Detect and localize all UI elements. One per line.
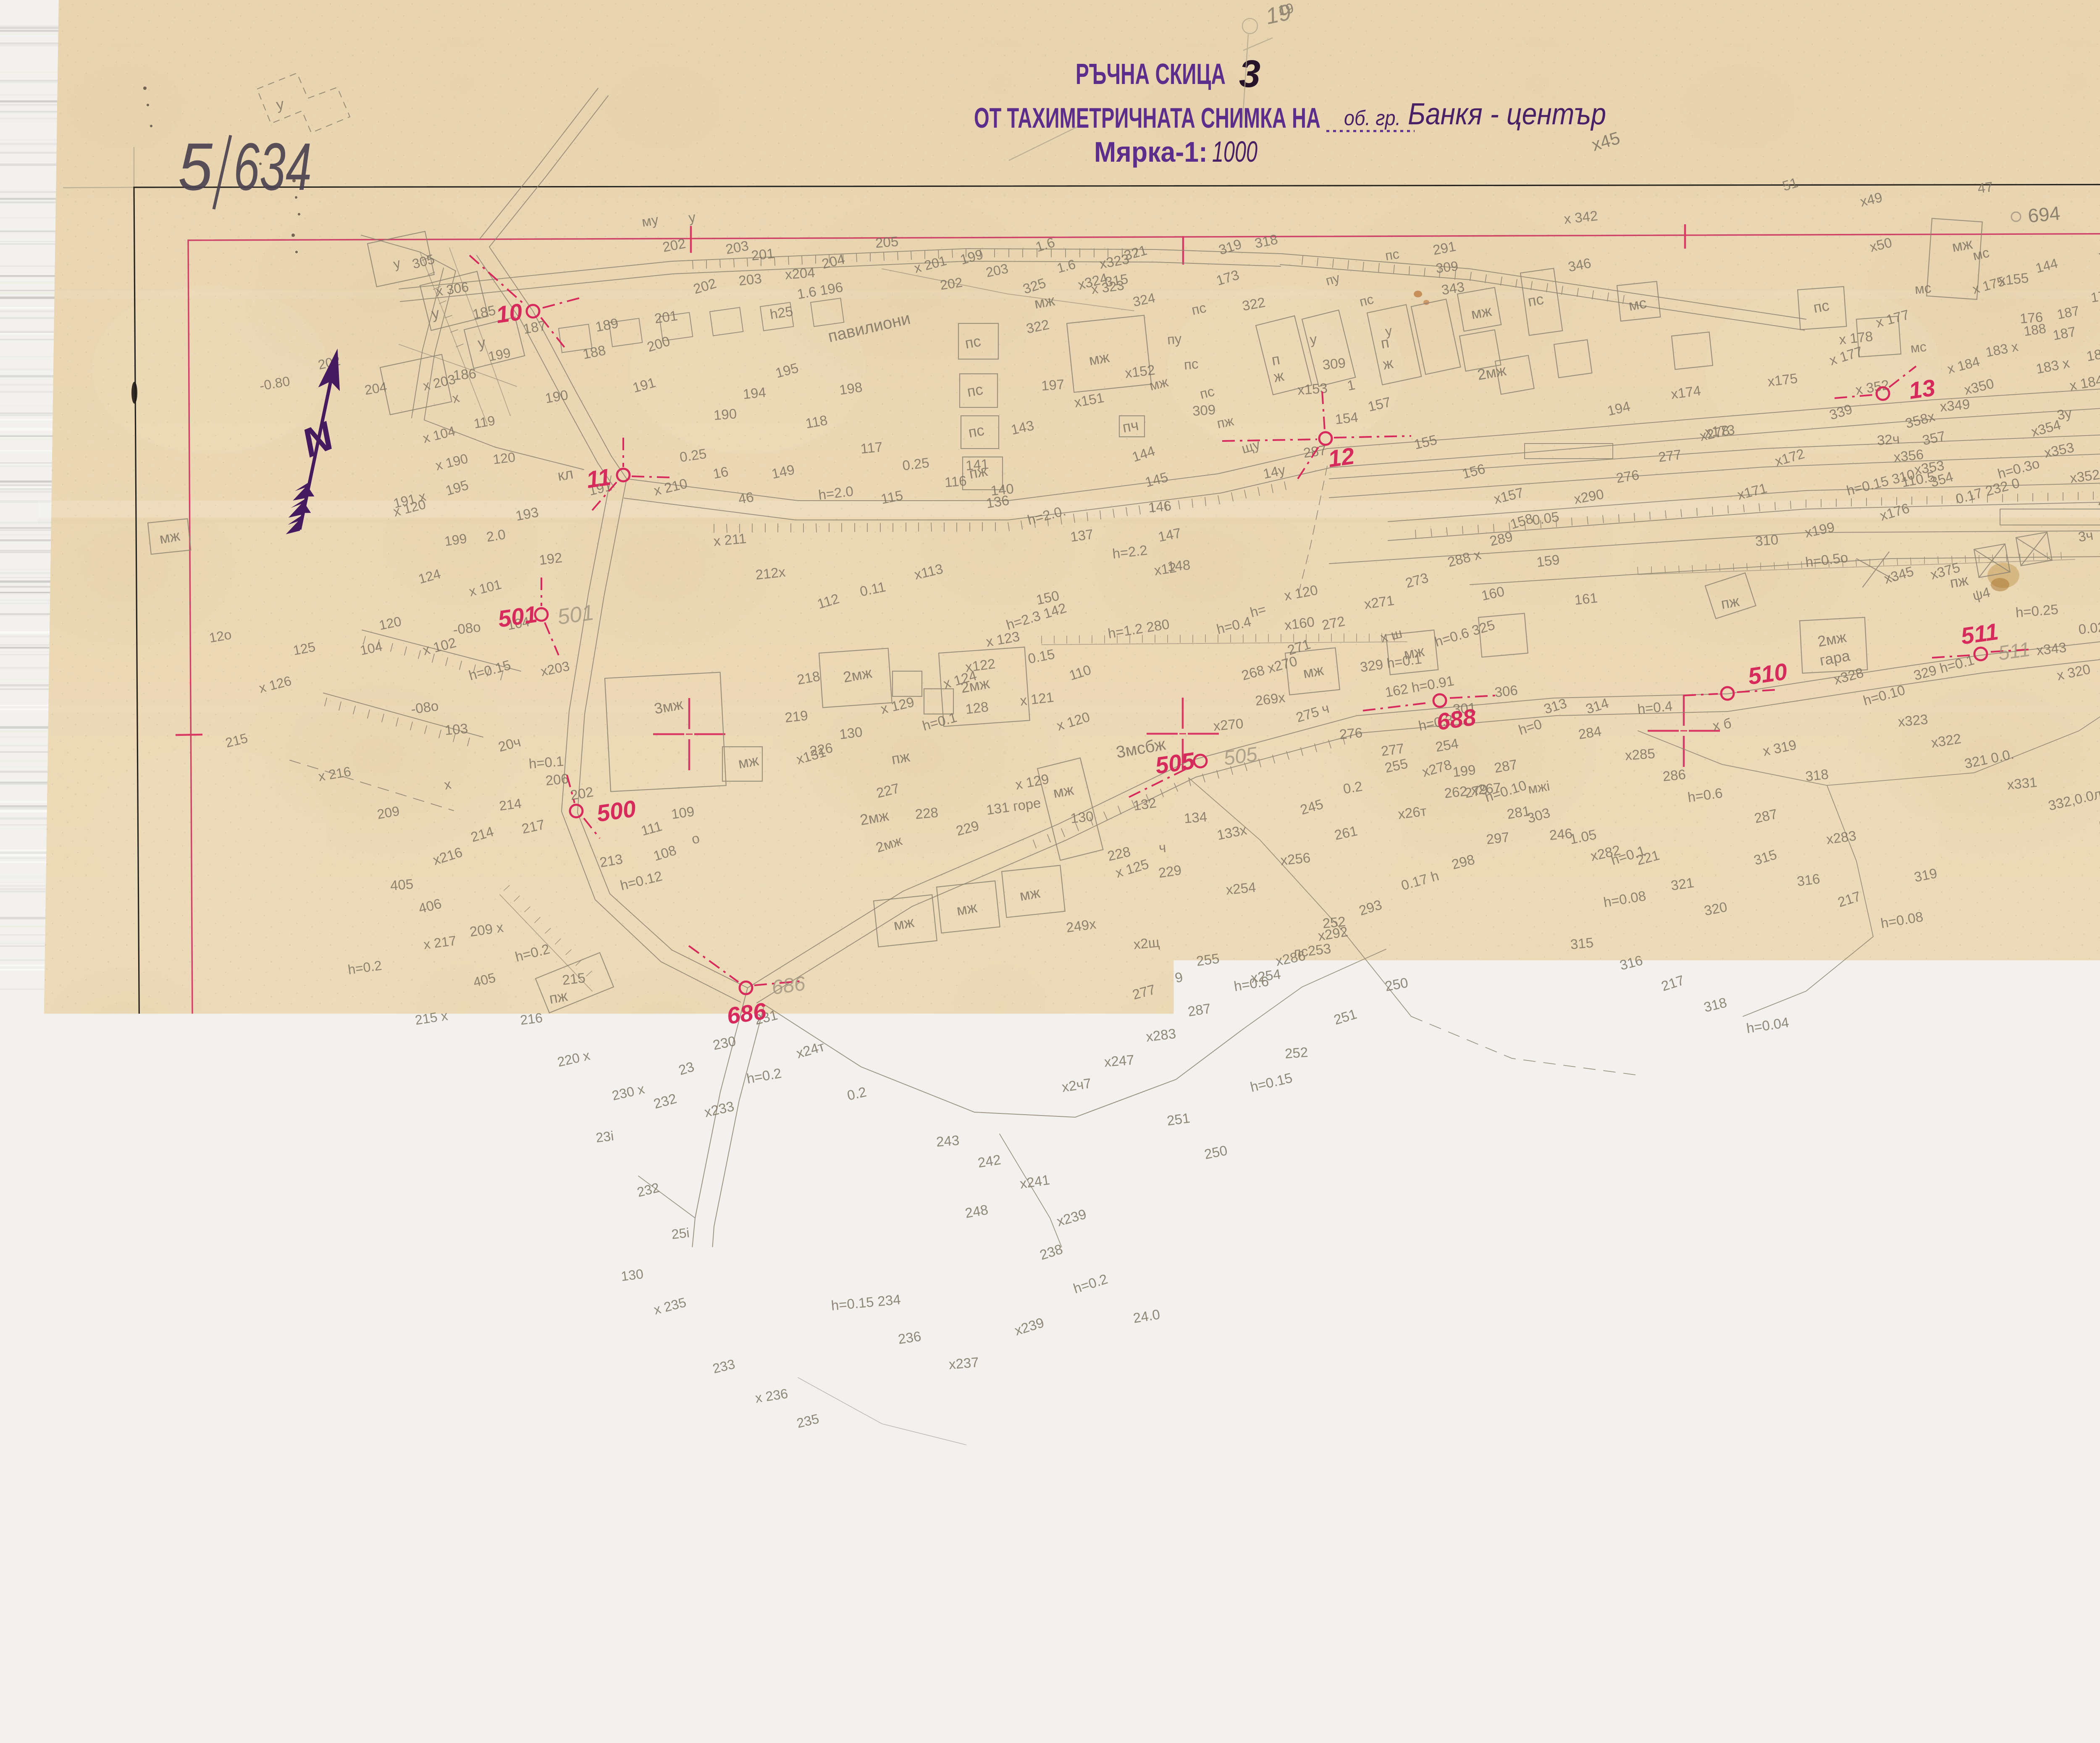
svg-text:286: 286 xyxy=(1662,766,1686,784)
svg-text:1000: 1000 xyxy=(1212,135,1257,168)
svg-text:мс: мс xyxy=(1910,339,1927,356)
svg-text:205: 205 xyxy=(875,234,899,251)
svg-text:130: 130 xyxy=(838,724,863,742)
svg-text:х323: х323 xyxy=(1897,711,1929,729)
svg-text:12: 12 xyxy=(1326,442,1356,472)
svg-text:310: 310 xyxy=(1755,532,1779,549)
svg-text:5: 5 xyxy=(178,129,213,204)
svg-text:h=0.1: h=0.1 xyxy=(528,753,564,772)
svg-text:0.2: 0.2 xyxy=(1342,778,1363,797)
svg-text:ОПЕРАТОР: ИНЖ. Г. ГРЪНЧОВСКИ: ОПЕРАТОР: ИНЖ. Г. ГРЪНЧОВСКИ xyxy=(1850,1608,2100,1643)
svg-text:х153: х153 xyxy=(1297,380,1328,398)
svg-text:501: 501 xyxy=(556,600,596,630)
svg-text:46: 46 xyxy=(737,489,755,507)
svg-text:128: 128 xyxy=(964,699,989,717)
svg-text:510: 510 xyxy=(1746,658,1789,689)
svg-text:501: 501 xyxy=(496,601,539,632)
svg-text:505: 505 xyxy=(1222,743,1259,770)
svg-text:пж: пж xyxy=(890,748,911,768)
svg-text:500: 500 xyxy=(595,795,638,827)
svg-text:3: 3 xyxy=(1239,52,1260,95)
svg-text:309: 309 xyxy=(1192,402,1216,419)
svg-text:219: 219 xyxy=(784,707,809,725)
svg-text:23і: 23і xyxy=(595,1128,615,1145)
svg-text:214: 214 xyxy=(498,795,522,814)
svg-text:об. гр.: об. гр. xyxy=(1344,106,1401,130)
svg-text:116: 116 xyxy=(944,473,968,490)
svg-text:246: 246 xyxy=(889,1111,913,1129)
svg-text:511: 511 xyxy=(1959,618,2000,649)
svg-text:688: 688 xyxy=(1435,703,1478,735)
svg-text:190: 190 xyxy=(713,406,738,423)
svg-text:686: 686 xyxy=(725,997,768,1029)
svg-text:277: 277 xyxy=(1380,740,1405,759)
svg-text:201: 201 xyxy=(654,307,679,326)
svg-text:19: 19 xyxy=(1263,0,1293,29)
svg-text:мж: мж xyxy=(892,913,915,934)
svg-text:309: 309 xyxy=(1322,355,1346,373)
svg-text:пс: пс xyxy=(963,332,982,352)
svg-text:пс: пс xyxy=(966,381,984,400)
svg-text:197: 197 xyxy=(1041,376,1065,394)
svg-text:246: 246 xyxy=(1549,825,1573,843)
svg-text:109: 109 xyxy=(670,803,696,822)
svg-text:228: 228 xyxy=(914,804,939,822)
svg-text:пж: пж xyxy=(1719,592,1740,612)
svg-text:694: 694 xyxy=(2027,202,2061,227)
svg-text:х247: х247 xyxy=(1104,1052,1135,1070)
svg-text:2.0: 2.0 xyxy=(485,526,507,545)
svg-text:мж: мж xyxy=(1950,235,1974,255)
svg-text:16: 16 xyxy=(711,463,730,481)
svg-text:202: 202 xyxy=(939,275,963,293)
svg-text:11: 11 xyxy=(585,463,612,493)
svg-text:634: 634 xyxy=(234,129,312,204)
svg-text:216: 216 xyxy=(519,1010,543,1028)
svg-text:мж: мж xyxy=(1470,302,1493,323)
svg-text:117: 117 xyxy=(860,439,883,457)
svg-text:686: 686 xyxy=(770,972,807,999)
svg-text:х 211: х 211 xyxy=(713,530,747,549)
svg-text:мж: мж xyxy=(1018,884,1041,904)
svg-text:120: 120 xyxy=(492,449,516,467)
svg-text:мж: мж xyxy=(1033,291,1056,312)
svg-text:Банкя - център: Банкя - център xyxy=(1408,97,1606,131)
svg-text:пс: пс xyxy=(1812,297,1830,316)
svg-text:141: 141 xyxy=(965,456,990,473)
svg-text:х б: х б xyxy=(1711,715,1732,734)
svg-text:х237: х237 xyxy=(948,1354,979,1372)
svg-text:212х: 212х xyxy=(755,564,787,583)
svg-text:х285: х285 xyxy=(1625,745,1656,763)
svg-text:пж: пж xyxy=(1215,413,1235,431)
svg-text:х204: х204 xyxy=(785,265,816,282)
svg-text:х2щ: х2щ xyxy=(1133,934,1160,952)
svg-text:х331: х331 xyxy=(2006,774,2038,793)
svg-text:ч: ч xyxy=(1158,840,1167,856)
svg-text:-08о: -08о xyxy=(452,619,482,638)
svg-text:х343: х343 xyxy=(2036,639,2067,658)
svg-text:192: 192 xyxy=(538,550,563,568)
svg-text:пс: пс xyxy=(1526,290,1545,310)
svg-text:198: 198 xyxy=(838,379,864,398)
svg-text:137: 137 xyxy=(1069,526,1095,545)
svg-text:252: 252 xyxy=(1284,1044,1309,1061)
svg-text:315: 315 xyxy=(1570,934,1594,952)
svg-text:3у: 3у xyxy=(2056,405,2073,423)
svg-text:159: 159 xyxy=(1536,551,1560,570)
svg-text:РЪЧНА СКИЦА: РЪЧНА СКИЦА xyxy=(1076,58,1226,90)
svg-text:309: 309 xyxy=(1435,258,1459,276)
svg-text:х349: х349 xyxy=(1939,396,1971,415)
svg-text:13: 13 xyxy=(1907,374,1937,404)
svg-text:146: 146 xyxy=(1147,498,1172,515)
svg-text:32ч: 32ч xyxy=(1877,431,1900,448)
svg-text:мс: мс xyxy=(1914,280,1932,297)
svg-text:3ч: 3ч xyxy=(2077,527,2094,545)
svg-text:пу: пу xyxy=(1167,331,1183,347)
svg-text:10: 10 xyxy=(494,298,524,328)
svg-text:пж: пж xyxy=(548,987,569,1007)
svg-text:186: 186 xyxy=(452,365,477,383)
svg-text:пс: пс xyxy=(967,421,985,441)
svg-text:ОТ ТАХИМЕТРИЧНАТА СНИМКА НА: ОТ ТАХИМЕТРИЧНАТА СНИМКА НА xyxy=(974,102,1320,134)
svg-text:0.25: 0.25 xyxy=(901,455,930,473)
svg-text:130: 130 xyxy=(1070,808,1095,826)
svg-text:132: 132 xyxy=(1132,795,1158,814)
svg-text:пс: пс xyxy=(1183,356,1199,373)
svg-text:мж: мж xyxy=(1087,348,1110,369)
svg-text:Мярка-1:: Мярка-1: xyxy=(1094,136,1207,168)
svg-text:47: 47 xyxy=(1977,179,1994,196)
svg-text:277: 277 xyxy=(1657,446,1682,465)
svg-text:215: 215 xyxy=(562,970,586,988)
svg-text:318: 318 xyxy=(1805,766,1830,784)
svg-text:199: 199 xyxy=(444,531,468,549)
svg-text:297: 297 xyxy=(1486,829,1510,847)
svg-text:316: 316 xyxy=(1796,871,1821,889)
svg-text:кл: кл xyxy=(556,465,575,484)
svg-text:199: 199 xyxy=(1452,762,1476,780)
svg-text:КРОКИСТ: ИНЖ. Н. ЦАНЕВ: КРОКИСТ: ИНЖ. Н. ЦАНЕВ xyxy=(1858,1572,2100,1606)
svg-text:мж: мж xyxy=(1302,661,1325,682)
svg-text:пс: пс xyxy=(1384,246,1400,263)
svg-text:мж: мж xyxy=(737,751,760,772)
svg-text:154: 154 xyxy=(1334,409,1359,427)
svg-text:511: 511 xyxy=(1997,638,2032,665)
svg-text:276: 276 xyxy=(1339,724,1363,742)
svg-text:пч: пч xyxy=(1121,416,1140,436)
svg-text:х270: х270 xyxy=(1213,716,1244,734)
svg-text:мж: мж xyxy=(1052,781,1075,801)
svg-text:му: му xyxy=(640,212,659,230)
svg-text:0.02: 0.02 xyxy=(2078,619,2100,637)
svg-text:мс: мс xyxy=(1627,294,1648,314)
svg-text:мж: мж xyxy=(955,898,978,919)
svg-text:161: 161 xyxy=(1574,590,1599,608)
svg-text:243: 243 xyxy=(936,1132,960,1150)
svg-text:236: 236 xyxy=(897,1328,922,1347)
svg-text:мж: мж xyxy=(158,527,181,547)
svg-text:203: 203 xyxy=(738,270,763,289)
svg-text:х256: х256 xyxy=(1280,850,1311,868)
svg-text:251: 251 xyxy=(1166,1110,1191,1129)
svg-text:130: 130 xyxy=(620,1266,644,1284)
svg-text:201: 201 xyxy=(751,245,775,263)
svg-text:306: 306 xyxy=(1494,682,1519,700)
svg-text:103: 103 xyxy=(444,720,468,738)
svg-text:255: 255 xyxy=(1195,950,1221,969)
svg-text:321: 321 xyxy=(1670,874,1695,893)
svg-text:194: 194 xyxy=(742,384,766,402)
svg-text:25і: 25і xyxy=(671,1225,690,1242)
svg-text:405: 405 xyxy=(390,876,414,893)
svg-text:134: 134 xyxy=(1184,809,1208,826)
svg-text:х254: х254 xyxy=(1225,879,1257,898)
svg-text:206: 206 xyxy=(545,771,569,788)
